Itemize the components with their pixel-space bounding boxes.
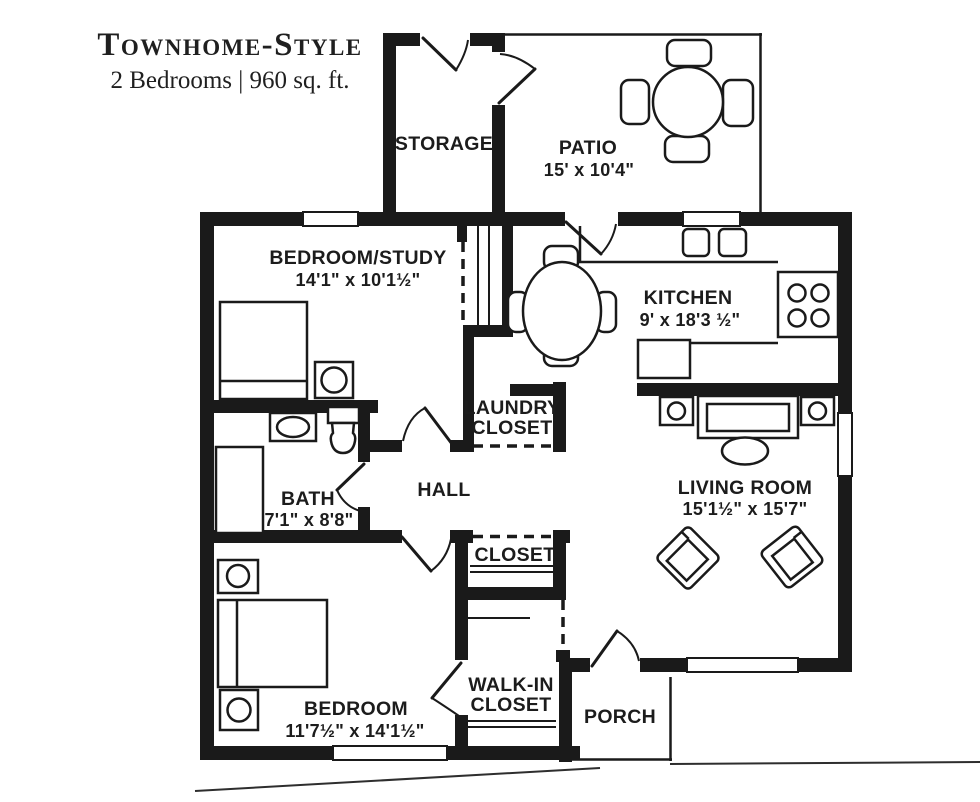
storage-room: STORAGE xyxy=(383,33,535,212)
patio-label: PATIO xyxy=(559,137,617,159)
porch-label: PORCH xyxy=(584,706,656,728)
ground-lines xyxy=(195,762,980,791)
bathtub-symbol xyxy=(216,447,263,533)
living-room: LIVING ROOM 15'1½" x 15'7" xyxy=(655,396,834,591)
bathroom: BATH 7'1" x 8'8" xyxy=(216,407,364,533)
title-block: Townhome-Style 2 Bedrooms | 960 sq. ft. xyxy=(97,27,362,94)
window-living-right xyxy=(838,413,852,476)
toilet-symbol xyxy=(328,407,359,453)
kitchen: KITCHEN 9' x 18'3 ½" xyxy=(580,226,838,378)
armchair-symbol xyxy=(760,525,825,590)
bedroom-label: BEDROOM xyxy=(304,698,408,720)
dining-table-symbol xyxy=(508,246,616,366)
patio-dims: 15' x 10'4" xyxy=(544,160,634,180)
floor-plan-page: Townhome-Style 2 Bedrooms | 960 sq. ft. … xyxy=(0,0,980,802)
bedroom-dims: 11'7½" x 14'1½" xyxy=(285,721,424,741)
plan-subtitle: 2 Bedrooms | 960 sq. ft. xyxy=(110,67,349,94)
nightstand-symbol xyxy=(315,362,353,398)
storage-door xyxy=(423,38,468,70)
bed-symbol xyxy=(220,302,307,399)
bedroom-study: BEDROOM/STUDY 14'1" x 10'1½" xyxy=(220,226,489,399)
bed-symbol xyxy=(218,600,327,687)
window-bedroom xyxy=(333,746,447,760)
bedroom-study-label: BEDROOM/STUDY xyxy=(269,247,446,269)
front-door xyxy=(592,631,639,666)
bedroom: BEDROOM 11'7½" x 14'1½" xyxy=(218,560,425,741)
bedroom-study-dims: 14'1" x 10'1½" xyxy=(296,270,421,290)
bedroom-study-door xyxy=(403,408,452,444)
kitchen-lower-counter xyxy=(638,340,778,378)
hall-label: HALL xyxy=(417,479,470,501)
bath-dims: 7'1" x 8'8" xyxy=(265,510,354,530)
bathroom-sink-symbol xyxy=(270,413,316,441)
window-living-bottom xyxy=(687,658,798,672)
patio-table-symbol xyxy=(621,40,753,162)
walk-in-label-1: WALK-IN xyxy=(468,674,554,696)
walk-in-closet-door xyxy=(432,663,461,716)
hall-closet: CLOSET xyxy=(470,537,555,573)
kitchen-sink-symbol xyxy=(683,229,746,256)
porch: PORCH xyxy=(559,631,672,761)
living-room-dims: 15'1½" x 15'7" xyxy=(683,499,808,519)
living-room-label: LIVING ROOM xyxy=(678,477,812,499)
storage-label: STORAGE xyxy=(395,133,493,155)
kitchen-label: KITCHEN xyxy=(644,287,733,309)
entertainment-center-symbol xyxy=(660,396,834,438)
walk-in-label-2: CLOSET xyxy=(471,694,552,716)
stove-symbol xyxy=(778,272,838,337)
patio: PATIO 15' x 10'4" xyxy=(505,33,762,212)
nightstand-symbol xyxy=(220,690,258,730)
closet-label: CLOSET xyxy=(475,544,556,566)
bedroom-door xyxy=(402,537,451,571)
kitchen-dims: 9' x 18'3 ½" xyxy=(640,310,741,330)
laundry-label-1: LAUNDRY xyxy=(464,397,561,419)
laundry-closet: LAUNDRY CLOSET xyxy=(464,397,561,446)
bath-label: BATH xyxy=(281,488,335,510)
window-bedroom-study xyxy=(303,212,358,226)
storage-patio-door xyxy=(499,54,535,103)
floor-plan-drawing: Townhome-Style 2 Bedrooms | 960 sq. ft. … xyxy=(0,0,980,802)
plan-title: Townhome-Style xyxy=(97,27,362,63)
bath-door xyxy=(337,464,364,511)
walk-in-closet: WALK-IN CLOSET xyxy=(432,600,563,727)
window-kitchen xyxy=(683,212,740,226)
coffee-table-symbol xyxy=(722,438,768,465)
laundry-label-2: CLOSET xyxy=(472,417,553,439)
armchair-symbol xyxy=(655,525,720,590)
nightstand-symbol xyxy=(218,560,258,593)
